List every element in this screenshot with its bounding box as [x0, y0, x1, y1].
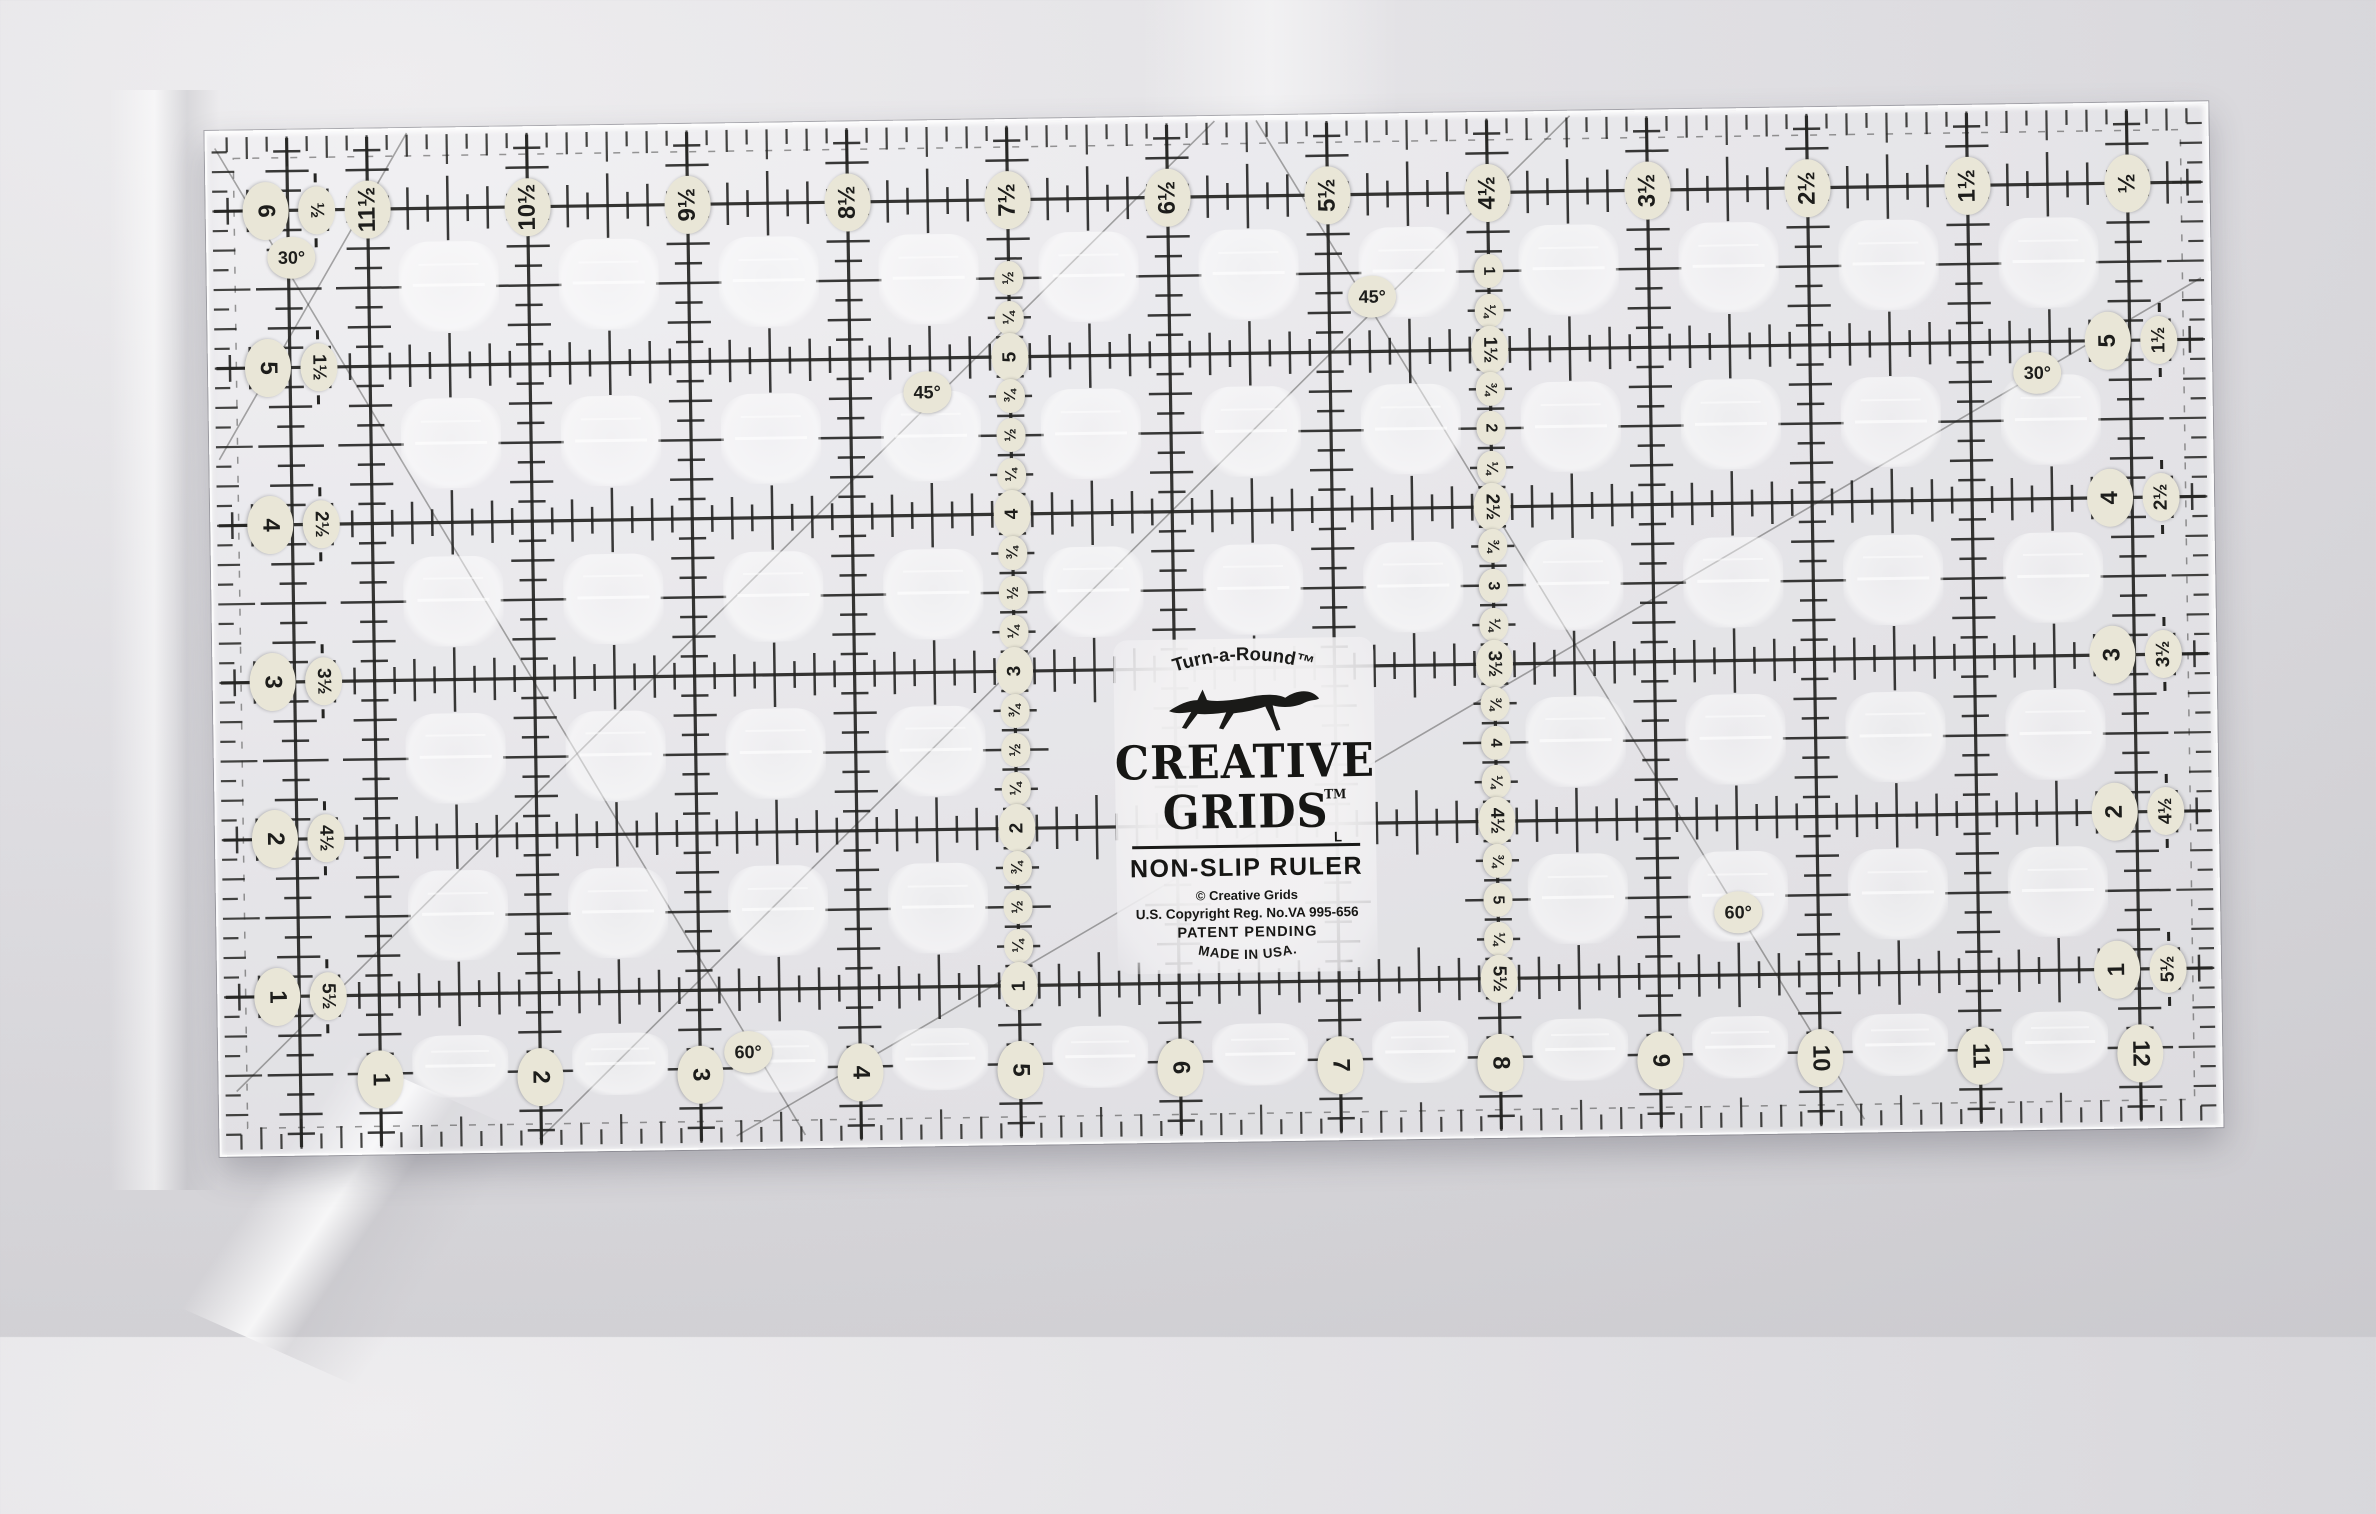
top-scale-label: 2½: [1784, 158, 1831, 217]
brand-label: Turn-a-Round™ CREATIVE GRIDSTML NON-SLIP…: [1113, 637, 1378, 975]
bottom-scale-label: 8: [1477, 1034, 1524, 1093]
registration-text: U.S. Copyright Reg. No.VA 995-656: [1136, 904, 1359, 922]
left-scale-alt-label: 4½: [307, 814, 345, 863]
center-column-label: 5: [1483, 883, 1513, 917]
angle-label: 45°: [1348, 275, 1397, 318]
center-column-label: ¾: [998, 536, 1028, 570]
bottom-scale-label: 4: [837, 1043, 884, 1102]
right-scale-alt-label: 2½: [2142, 473, 2180, 522]
right-scale-alt-label: 1½: [2140, 316, 2178, 365]
brand-name-line2: GRIDSTML: [1162, 784, 1329, 840]
top-scale-label: 8½: [824, 173, 871, 232]
top-scale-label: 10½: [504, 177, 551, 236]
center-column-label: 5½: [1480, 954, 1518, 1003]
right-scale-label: 4: [2086, 468, 2133, 527]
center-column-label: ¾: [1480, 686, 1510, 720]
center-column-label: ¾: [1476, 372, 1506, 406]
right-scale-label: 3: [2089, 626, 2136, 685]
center-column-label: ¾: [1000, 693, 1030, 727]
center-column-label: ¼: [1002, 772, 1032, 806]
center-column-label: 4: [993, 490, 1031, 539]
center-column-label: ¾: [996, 379, 1026, 413]
right-scale-alt-label: 4½: [2147, 787, 2185, 836]
angle-label: 30°: [267, 236, 316, 279]
top-scale-label: 5½: [1304, 166, 1351, 225]
left-scale-label: 6: [242, 181, 289, 240]
bottom-scale-label: 11: [1957, 1027, 2004, 1086]
svg-text:MADE IN USA.: MADE IN USA.: [1197, 941, 1298, 963]
angle-label: 30°: [2013, 352, 2062, 395]
top-scale-label: 4½: [1464, 163, 1511, 222]
bottom-scale-label: 7: [1317, 1036, 1364, 1095]
center-column-label: 1½: [1471, 325, 1509, 374]
top-scale-label: 1½: [1944, 156, 1991, 215]
center-column-label: ¼: [1484, 922, 1514, 956]
bottom-scale-label: 12: [2117, 1025, 2164, 1084]
center-column-label: ½: [994, 261, 1024, 295]
bottom-scale-label: 10: [1797, 1029, 1844, 1088]
left-scale-alt-label: ½: [298, 186, 336, 235]
made-in-text: MADE IN USA.: [1197, 941, 1298, 963]
left-scale-alt-label: 1½: [300, 343, 338, 392]
right-scale-alt-label: 5½: [2149, 944, 2187, 993]
angle-label: 60°: [1714, 891, 1763, 934]
bottom-scale-label: 2: [517, 1048, 564, 1107]
center-column-label: 1: [1000, 961, 1038, 1010]
top-scale-label: 7½: [984, 170, 1031, 229]
center-column-label: ¼: [995, 300, 1025, 334]
copyright-text: © Creative Grids: [1196, 886, 1298, 903]
center-column-label: 3: [996, 647, 1034, 696]
center-column-label: ½: [1003, 890, 1033, 924]
left-scale-label: 4: [246, 496, 293, 555]
center-column-label: ¼: [1475, 293, 1505, 327]
top-scale-label: 3½: [1624, 161, 1671, 220]
center-column-label: 5: [991, 333, 1029, 382]
brand-name-line1: CREATIVE: [1115, 734, 1376, 792]
center-column-label: 1: [1474, 254, 1504, 288]
trademark-mark: TM: [1324, 786, 1346, 801]
center-column-label: 4½: [1478, 797, 1516, 846]
center-column-label: ¼: [997, 458, 1027, 492]
made-in-arc: MADE IN USA.: [1128, 938, 1368, 974]
center-column-label: ¼: [1004, 929, 1034, 963]
brand-tagline: Turn-a-Round™: [1170, 642, 1317, 676]
l-mark: L: [1334, 828, 1343, 844]
left-scale-label: 1: [253, 967, 300, 1026]
bottom-scale-label: 3: [677, 1046, 724, 1105]
measurement-labels: 11½10½9½8½7½6½5½4½3½2½1½½123456789101112…: [206, 103, 2221, 1155]
left-scale-label: 5: [244, 339, 291, 398]
center-column-label: 3: [1479, 568, 1509, 602]
center-column-label: ¼: [1482, 765, 1512, 799]
center-column-label: ¾: [1003, 850, 1033, 884]
center-column-label: 3½: [1476, 640, 1514, 689]
center-column-label: 2: [1476, 411, 1506, 445]
bottom-scale-label: 6: [1157, 1039, 1204, 1098]
bottom-scale-label: 9: [1637, 1032, 1684, 1091]
svg-text:Turn-a-Round™: Turn-a-Round™: [1170, 642, 1317, 676]
center-column-label: ½: [1001, 733, 1031, 767]
top-scale-label: 6½: [1144, 168, 1191, 227]
center-column-label: ¾: [1478, 529, 1508, 563]
center-column-label: 4: [1481, 725, 1511, 759]
angle-label: 60°: [724, 1031, 773, 1074]
left-scale-alt-label: 2½: [302, 500, 340, 549]
top-scale-label: 11½: [344, 180, 391, 239]
center-column-label: ¾: [1483, 843, 1513, 877]
top-scale-label: 9½: [664, 175, 711, 234]
quilting-ruler: 11½10½9½8½7½6½5½4½3½2½1½½123456789101112…: [204, 101, 2223, 1157]
product-name: NON-SLIP RULER: [1130, 851, 1363, 883]
center-column-label: 2: [998, 804, 1036, 853]
center-column-label: ¼: [999, 615, 1029, 649]
photo-of-quilting-ruler: { "colors": { "fabric": "#d6d5d8", "ink"…: [0, 0, 2376, 1337]
left-scale-alt-label: 3½: [305, 657, 343, 706]
center-column-label: ½: [999, 575, 1029, 609]
right-scale-label: 2: [2091, 783, 2138, 842]
brand-tagline-arc: Turn-a-Round™: [1114, 637, 1373, 687]
center-column-label: ½: [996, 418, 1026, 452]
left-scale-label: 3: [249, 653, 296, 712]
right-scale-label: 5: [2084, 311, 2131, 370]
center-column-label: ¼: [1477, 450, 1507, 484]
center-column-label: 2½: [1473, 483, 1511, 532]
fox-logo-icon: [1138, 683, 1351, 739]
bottom-scale-label: 5: [997, 1041, 1044, 1100]
center-column-label: ¼: [1479, 608, 1509, 642]
left-scale-label: 2: [251, 810, 298, 869]
angle-label: 45°: [903, 371, 952, 414]
left-scale-alt-label: 5½: [309, 972, 347, 1021]
top-scale-label: ½: [2104, 154, 2151, 213]
right-scale-alt-label: 3½: [2144, 630, 2182, 679]
fabric-highlight: [1140, 0, 1400, 120]
right-scale-label: 1: [2093, 940, 2140, 999]
bottom-scale-label: 1: [357, 1051, 404, 1110]
logo-divider-line: [1132, 843, 1361, 849]
